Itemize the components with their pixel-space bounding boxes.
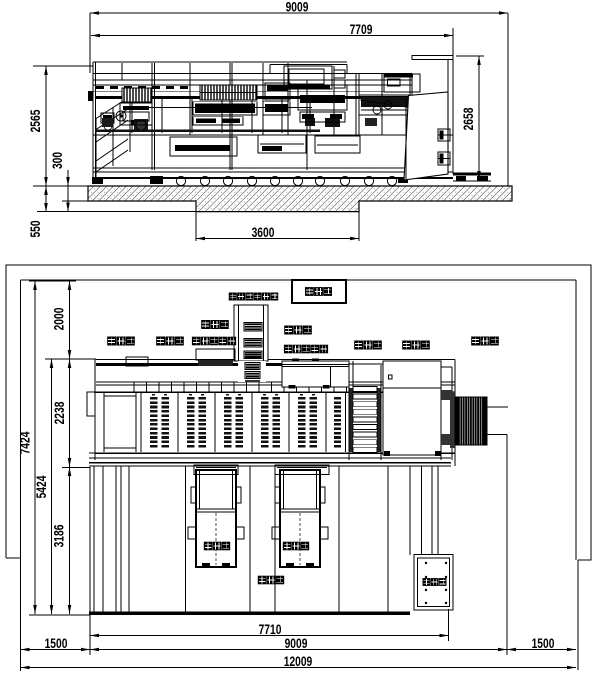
svg-text:7424: 7424 xyxy=(17,431,33,454)
svg-text:7709: 7709 xyxy=(350,21,373,37)
svg-text:2238: 2238 xyxy=(51,401,67,424)
svg-text:9009: 9009 xyxy=(286,0,309,15)
svg-text:2000: 2000 xyxy=(51,307,67,330)
svg-text:2658: 2658 xyxy=(460,107,476,130)
svg-text:2565: 2565 xyxy=(27,109,43,132)
svg-text:1500: 1500 xyxy=(532,635,555,651)
svg-text:1500: 1500 xyxy=(45,635,68,651)
svg-text:7710: 7710 xyxy=(259,621,282,637)
svg-text:550: 550 xyxy=(27,220,43,237)
svg-text:3186: 3186 xyxy=(51,524,67,547)
svg-text:12009: 12009 xyxy=(284,653,313,669)
svg-text:3600: 3600 xyxy=(252,224,275,240)
svg-text:9009: 9009 xyxy=(285,635,308,651)
svg-text:5424: 5424 xyxy=(33,475,49,498)
svg-text:300: 300 xyxy=(49,152,65,169)
